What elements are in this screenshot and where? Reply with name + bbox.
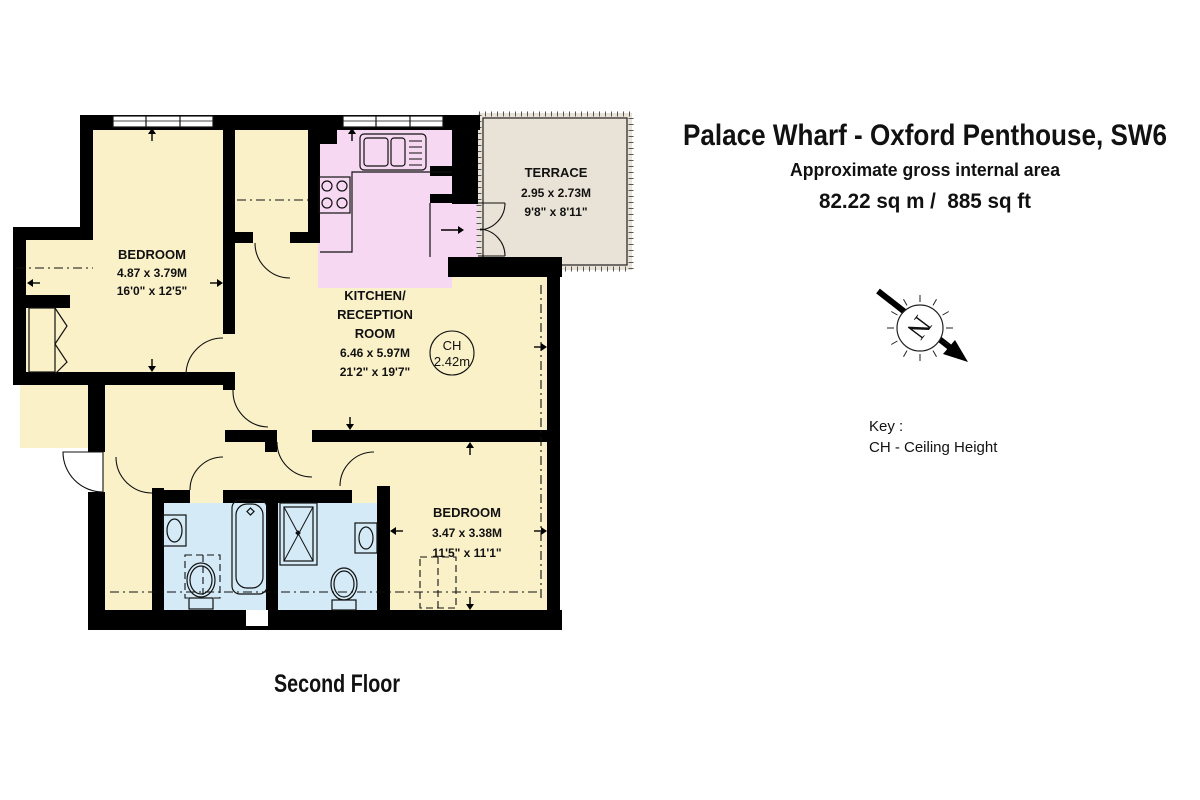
wall-segment — [164, 490, 190, 503]
bedroom2-metric: 3.47 x 3.38M — [432, 526, 502, 540]
wall-segment — [318, 130, 337, 144]
kitchen-metric: 6.46 x 5.97M — [340, 346, 410, 360]
wall-segment — [80, 115, 93, 240]
terrace-metric: 2.95 x 2.73M — [521, 186, 591, 200]
info-panel: Palace Wharf - Oxford Penthouse, SW6 App… — [683, 119, 1167, 213]
terrace-imperial: 9'8" x 8'11" — [524, 205, 587, 219]
wall-segment — [452, 128, 478, 204]
wall-segment — [88, 610, 562, 630]
wall-segment — [278, 490, 352, 503]
compass: N — [878, 291, 968, 362]
bedroom2-imperial: 11'5" x 11'1" — [432, 546, 501, 560]
wall-notch — [246, 610, 268, 626]
wall-segment — [26, 295, 70, 308]
floor-label: Second Floor — [274, 670, 400, 698]
kitchen-label-1: KITCHEN/ — [344, 288, 406, 303]
wall-segment — [13, 372, 235, 385]
wall-segment — [312, 430, 547, 442]
wall-segment — [88, 492, 105, 610]
bedroom1-imperial: 16'0" x 12'5" — [117, 284, 187, 298]
wall-segment — [308, 130, 320, 243]
key-item-ch: CH - Ceiling Height — [869, 439, 998, 456]
wall-segment — [547, 277, 560, 630]
window-bedroom1 — [113, 116, 213, 127]
wall-segment — [223, 372, 235, 390]
wall-segment — [88, 385, 105, 452]
fill-kitchen — [318, 130, 452, 288]
ceiling-height-badge: CH 2.42m — [430, 331, 474, 375]
wall-segment — [225, 430, 277, 442]
wall-segment — [377, 486, 390, 610]
ceiling-height-value: 2.42m — [434, 354, 470, 369]
wall-segment — [223, 130, 235, 334]
wall-segment — [290, 232, 320, 243]
wall-segment — [13, 227, 26, 385]
fill-closet-doorway — [253, 230, 290, 244]
wall-segment — [448, 257, 562, 277]
wall-segment — [430, 166, 452, 176]
area-subtitle: Approximate gross internal area — [790, 160, 1061, 180]
window-kitchen — [343, 116, 443, 127]
bedroom1-metric: 4.87 x 3.79M — [117, 266, 187, 280]
door-arc-entrance — [63, 452, 103, 492]
bedroom2-label: BEDROOM — [433, 505, 501, 520]
key-block: Key : CH - Ceiling Height — [869, 418, 998, 456]
floorplan-canvas: BEDROOM 4.87 x 3.79M 16'0" x 12'5" KITCH… — [0, 0, 1200, 800]
floorplan-page: BEDROOM 4.87 x 3.79M 16'0" x 12'5" KITCH… — [0, 0, 1200, 800]
wall-segment — [265, 442, 277, 452]
ceiling-height-label: CH — [443, 338, 462, 353]
wall-segment — [223, 490, 266, 503]
area-value: 82.22 sq m / 885 sq ft — [819, 190, 1031, 213]
page-title: Palace Wharf - Oxford Penthouse, SW6 — [683, 119, 1167, 152]
kitchen-label-3: ROOM — [355, 326, 395, 341]
fill-bathroom2 — [278, 503, 377, 610]
wall-segment — [235, 232, 253, 243]
key-heading: Key : — [869, 418, 903, 435]
kitchen-imperial: 21'2" x 19'7" — [340, 365, 410, 379]
bedroom1-label: BEDROOM — [118, 247, 186, 262]
wall-segment — [430, 194, 452, 203]
kitchen-label-2: RECEPTION — [337, 307, 413, 322]
terrace-label: TERRACE — [525, 165, 588, 180]
